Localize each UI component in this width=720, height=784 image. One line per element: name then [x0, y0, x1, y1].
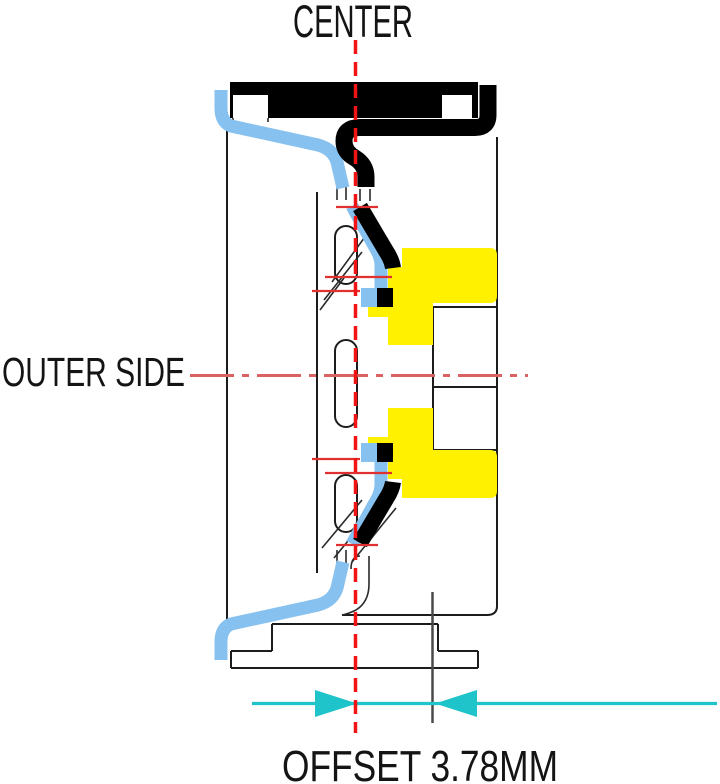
- pad-junction-blue-lower: [361, 443, 376, 462]
- top-flange-notch-left: [233, 95, 268, 118]
- offset-label: OFFSET 3.78MM: [282, 742, 558, 784]
- wheel-cross-section-canvas: CENTER OUTER SIDE OFFSET 3.78MM: [0, 0, 720, 784]
- spoke-section-upper-block: [377, 288, 393, 307]
- pad-junction-blue-upper: [361, 288, 376, 307]
- top-flange-notch-right: [442, 95, 472, 118]
- outer-side-label: OUTER SIDE: [2, 349, 185, 395]
- spoke-section-lower-block: [377, 443, 393, 462]
- center-label: CENTER: [293, 0, 413, 47]
- wheel-offset-diagram: CENTER OUTER SIDE OFFSET 3.78MM: [0, 0, 720, 784]
